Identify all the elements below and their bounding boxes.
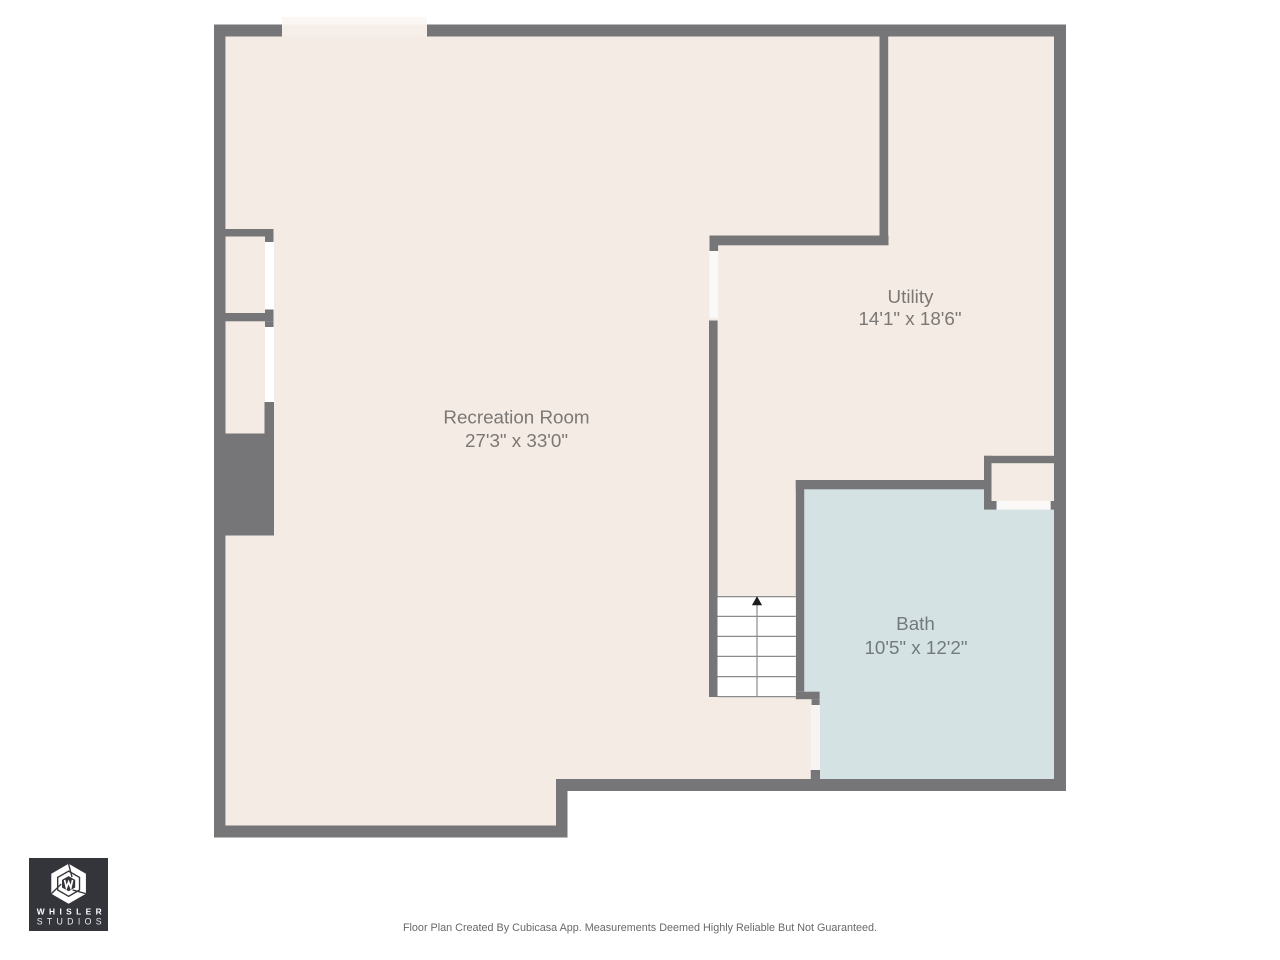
svg-text:Bath: Bath [896,613,935,634]
svg-text:Recreation Room: Recreation Room [443,407,589,428]
svg-text:Floor Plan Created By Cubicasa: Floor Plan Created By Cubicasa App. Meas… [403,922,877,934]
svg-text:10'5" x 12'2": 10'5" x 12'2" [864,637,967,658]
svg-text:WHISLER: WHISLER [37,906,106,916]
svg-text:14'1" x 18'6": 14'1" x 18'6" [858,308,961,329]
svg-text:Utility: Utility [888,286,935,307]
svg-text:27'3" x 33'0": 27'3" x 33'0" [465,430,568,451]
svg-text:STUDIOS: STUDIOS [37,916,106,926]
